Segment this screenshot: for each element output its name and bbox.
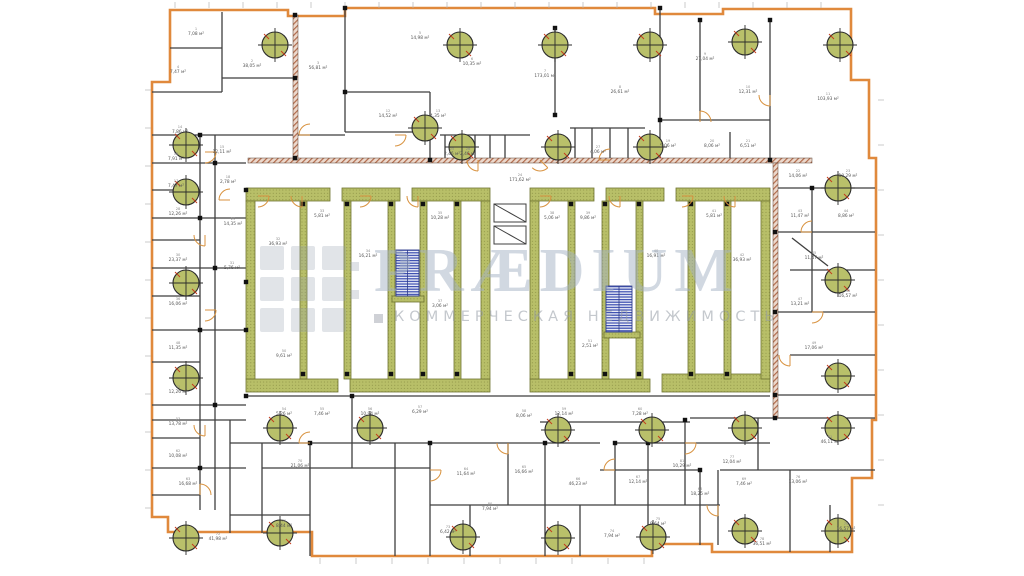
room-label: 356,81 м² — [309, 61, 328, 71]
room-label: 697,46 м² — [736, 477, 752, 487]
room-label: 7021,06 м² — [291, 459, 310, 469]
room-label: 2310,29 м² — [839, 169, 858, 179]
floor-plan-drawing: 17,08 м²238,05 м²356,81 м²47,47 м²514,98… — [0, 0, 1024, 576]
room-label: 6712,14 м² — [629, 475, 648, 485]
room-label: 610,35 м² — [463, 57, 482, 67]
room-label: 448,86 м² — [838, 209, 854, 219]
room-label: 4811,35 м² — [169, 341, 188, 351]
room-label: 509,61 м² — [276, 349, 292, 359]
room-label: 147,86 м² — [172, 125, 188, 135]
room-label: 512,51 м² — [582, 339, 598, 349]
elevator-shafts — [494, 204, 526, 244]
room-label: 7173,01 м² — [534, 69, 556, 79]
room-label: 1012,31 м² — [739, 85, 758, 95]
room-label: 17,08 м² — [188, 27, 204, 37]
staircase-icon — [396, 250, 419, 296]
room-label: 195,06 м² — [660, 139, 676, 149]
room-label: 4016,91 м² — [647, 249, 666, 259]
room-label: 736,42 м² — [440, 525, 456, 535]
room-label: 315,76 м² — [224, 261, 240, 271]
room-label: 5610,94 м² — [361, 407, 380, 417]
room-label: 3416,21 м² — [359, 249, 378, 259]
room-label: 3236,93 м² — [269, 237, 288, 247]
room-label: 7712,04 м² — [723, 455, 742, 465]
room-label: 4511,47 м² — [805, 251, 824, 261]
room-label: 514,98 м² — [411, 31, 430, 41]
wall-jambs — [198, 6, 814, 472]
column-marker-icons — [169, 25, 857, 555]
room-label: 208,06 м² — [704, 139, 720, 149]
room-label: 2214,06 м² — [789, 169, 808, 179]
room-label: 6411,64 м² — [457, 467, 476, 477]
room-label: 607,28 м² — [632, 407, 648, 417]
room-label: 588,06 м² — [516, 409, 532, 419]
room-label: 807,94 м² — [482, 502, 498, 512]
room-label: 238,05 м² — [243, 59, 262, 69]
room-label: 216,51 м² — [740, 139, 756, 149]
room-label: 8110,29 м² — [673, 459, 692, 469]
room-label: 182,78 м² — [220, 175, 236, 185]
room-label: 3510,28 м² — [431, 211, 450, 221]
room-label: 6210,08 м² — [169, 449, 188, 459]
room-label: 4713,21 м² — [791, 297, 810, 307]
room-label: 6818,25 м² — [691, 487, 710, 497]
room-label: 134,35 м² — [430, 109, 446, 119]
room-label: 545,26 м² — [276, 407, 292, 417]
room-label: 6516,66 м² — [515, 465, 534, 475]
room-label: 24171,62 м² — [509, 173, 531, 183]
room-label: 5912,14 м² — [555, 407, 574, 417]
room-label: 3616,06 м² — [169, 297, 188, 307]
room-label: 11103,93 м² — [817, 92, 839, 102]
room-label: 415,81 м² — [706, 209, 722, 219]
room-label: 759,64 м² — [650, 517, 666, 527]
room-label: 2812,26 м² — [169, 207, 188, 217]
room-label: 826,61 м² — [611, 85, 630, 95]
room-label: 4917,06 м² — [805, 341, 824, 351]
floor-plan-canvas: 17,08 м²238,05 м²356,81 м²47,47 м²514,98… — [0, 0, 1024, 576]
room-label: 747,94 м² — [604, 529, 620, 539]
room-label: 373,06 м² — [432, 299, 448, 309]
room-label: 3023,37 м² — [169, 253, 188, 263]
room-label: 576,29 м² — [412, 405, 428, 415]
room-label: 5313,78 м² — [169, 417, 188, 427]
room-label: 47,47 м² — [170, 65, 186, 75]
room-label: 4311,47 м² — [791, 209, 810, 219]
room-label: 1214,52 м² — [379, 109, 398, 119]
room-label: 7241,98 м² — [209, 532, 228, 542]
room-label: 6316,68 м² — [179, 477, 198, 487]
room-label: 927,04 м² — [696, 52, 715, 62]
room-label: 7613,06 м² — [789, 475, 808, 485]
room-label: 335,81 м² — [314, 209, 330, 219]
room-label: 4236,93 м² — [733, 253, 752, 263]
room-label: 399,86 м² — [580, 211, 596, 221]
room-label: 385,06 м² — [544, 211, 560, 221]
staircase-icon — [606, 286, 632, 332]
room-labels: 17,08 м²238,05 м²356,81 м²47,47 м²514,98… — [168, 27, 858, 547]
room-label: 557,46 м² — [314, 407, 330, 417]
room-label: 6646,23 м² — [569, 477, 588, 487]
